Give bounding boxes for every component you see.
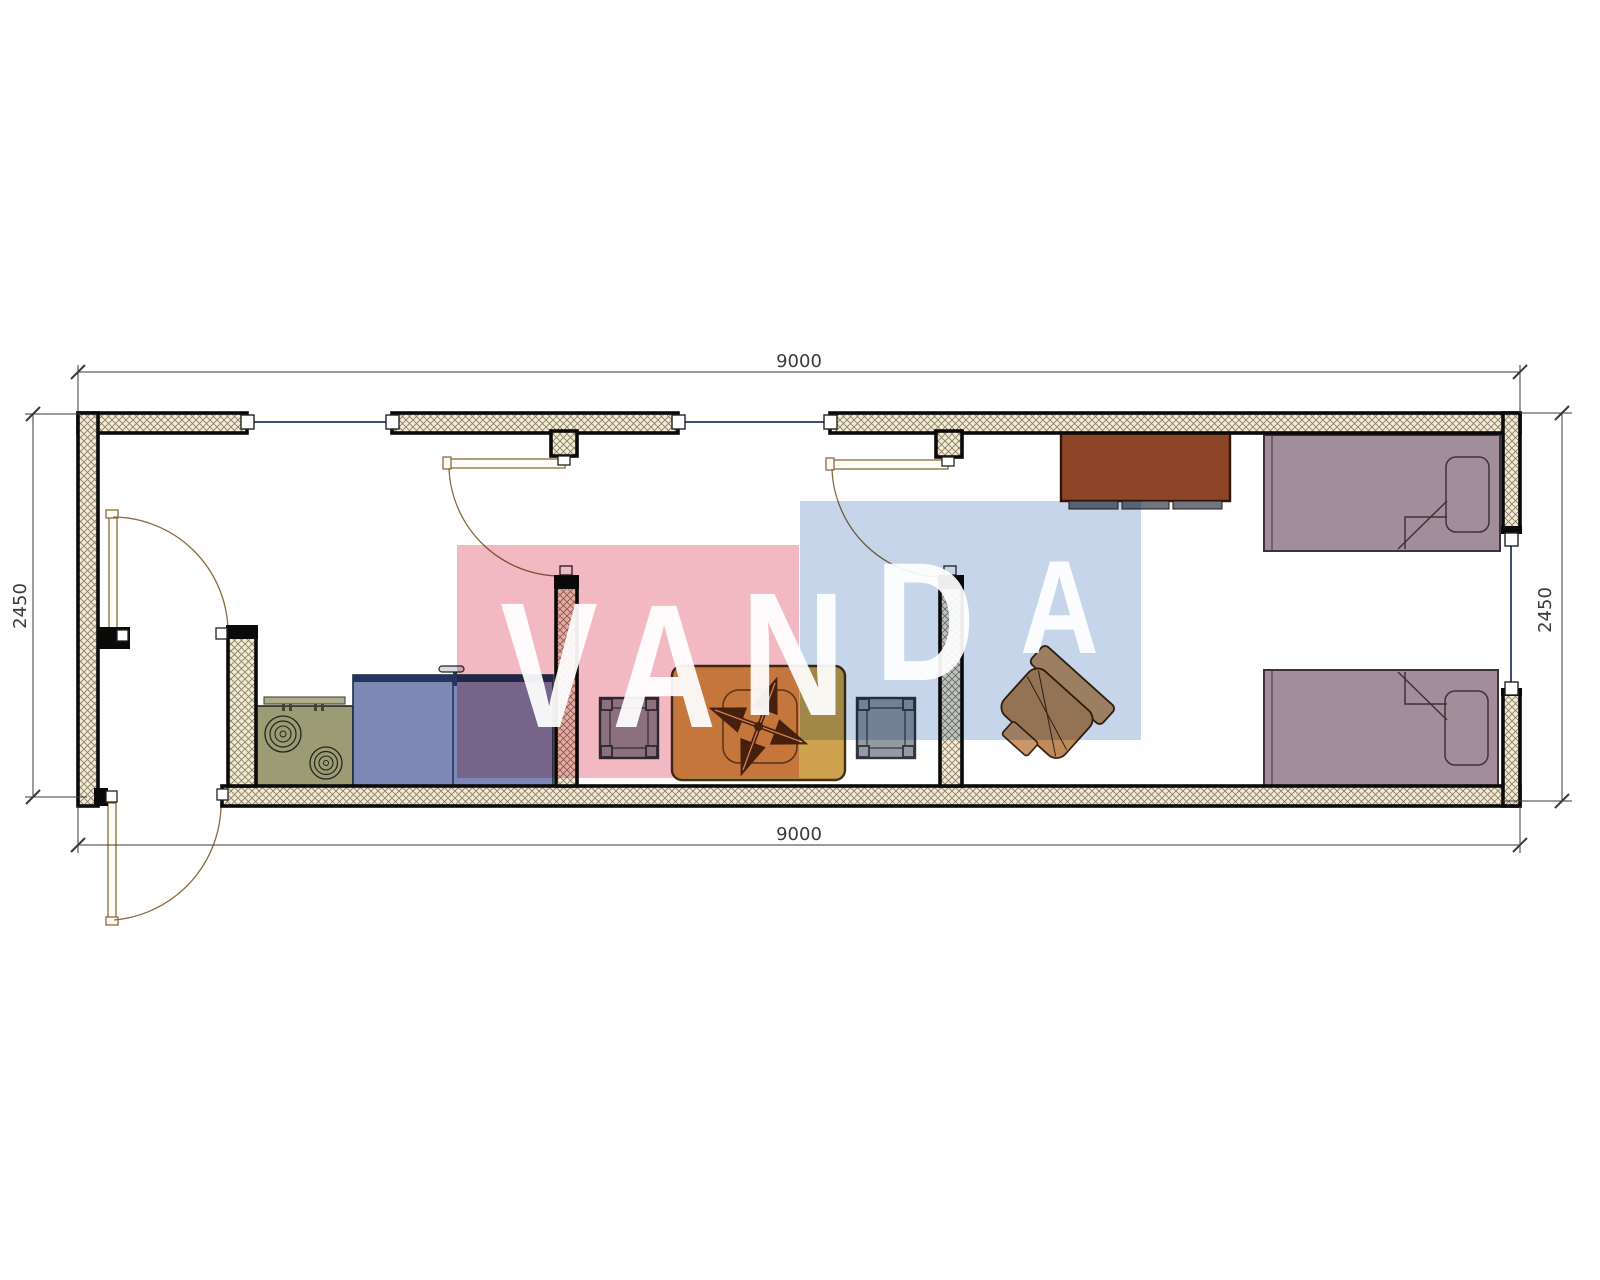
- dimension-top: 9000: [71, 351, 1527, 413]
- watermark-letter-v: V: [500, 565, 598, 765]
- wall-top-segment-3: [830, 413, 1520, 433]
- dimension-left-text: 2450: [10, 583, 31, 629]
- bed-symbol-bottom: [1264, 670, 1498, 786]
- dimension-top-text: 9000: [776, 351, 822, 372]
- watermark-letter-n: N: [741, 556, 845, 753]
- floorplan-drawing: 9000 9000 2450 2450: [0, 0, 1600, 1280]
- window-top-2: [672, 415, 837, 429]
- wall-top-segment-2: [392, 413, 678, 433]
- dimension-right-text: 2450: [1535, 587, 1556, 633]
- wall-left: [78, 413, 98, 806]
- watermark-letter-a2: A: [1020, 533, 1099, 682]
- wardrobe-symbol: [1061, 433, 1230, 509]
- door-vestibule: [106, 510, 228, 638]
- watermark: V A N D A: [457, 501, 1141, 778]
- door-entry-exterior: [106, 803, 221, 925]
- cap-partition-vestibule: [226, 625, 258, 639]
- dimension-bottom: 9000: [71, 806, 1527, 853]
- partition-vestibule: [228, 627, 256, 786]
- watermark-letter-d: D: [875, 527, 975, 716]
- wall-stub-middle: [551, 431, 577, 456]
- dimension-bottom-text: 9000: [776, 824, 822, 845]
- window-top-1: [241, 415, 399, 429]
- wall-top-segment-1: [78, 413, 247, 433]
- stove-symbol: [256, 697, 353, 786]
- wall-right-lower: [1503, 690, 1520, 806]
- bed-symbol-top: [1264, 435, 1500, 551]
- dimension-left: 2450: [10, 407, 87, 804]
- wall-bottom: [222, 786, 1520, 806]
- wall-right-upper: [1503, 413, 1520, 531]
- watermark-letter-a1: A: [612, 568, 716, 765]
- window-right: [1505, 533, 1518, 695]
- wall-stub-bedroom: [936, 431, 962, 457]
- floorplan-page: 9000 9000 2450 2450: [0, 0, 1600, 1280]
